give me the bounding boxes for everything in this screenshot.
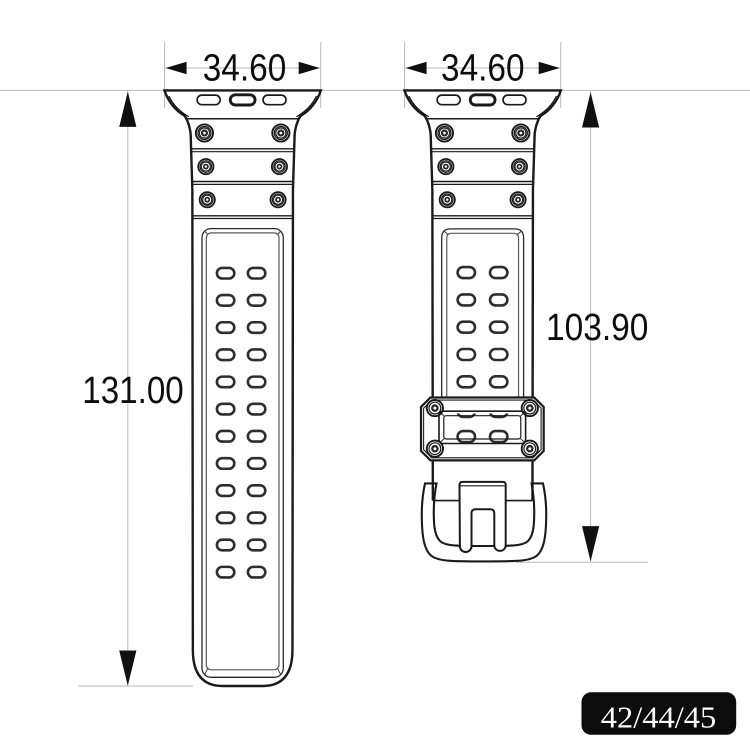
svg-text:34.60: 34.60	[441, 48, 525, 90]
svg-text:103.90: 103.90	[546, 307, 649, 349]
svg-text:34.60: 34.60	[203, 48, 287, 90]
svg-text:131.00: 131.00	[82, 370, 184, 412]
svg-text:42/44/45: 42/44/45	[601, 700, 717, 735]
